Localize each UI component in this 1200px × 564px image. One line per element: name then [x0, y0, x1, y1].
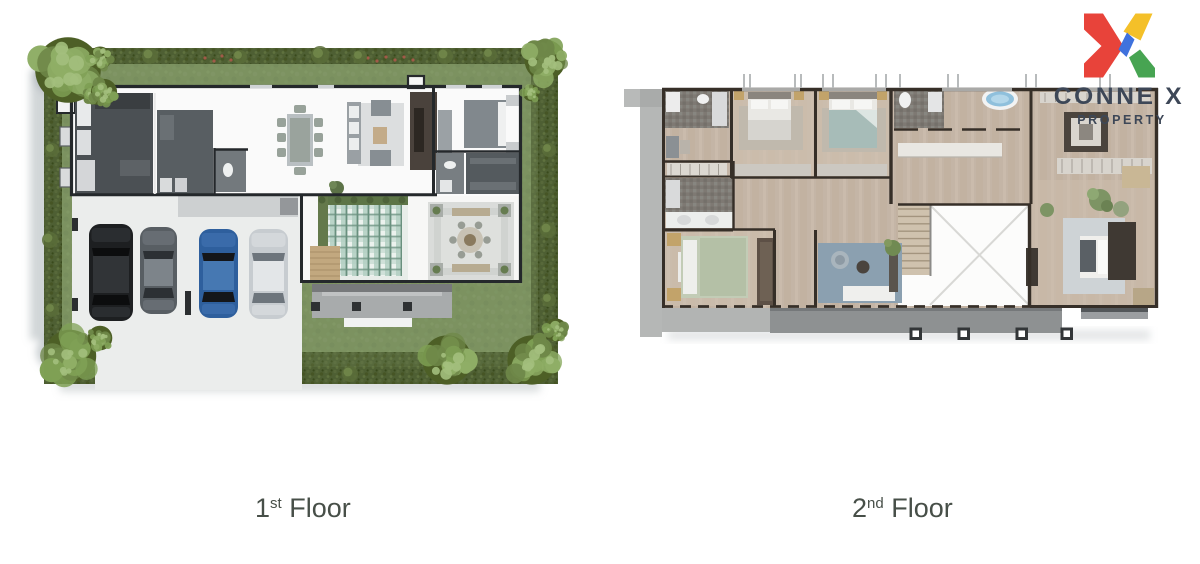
svg-text:PROPERTY: PROPERTY: [1077, 113, 1167, 127]
svg-text:CONNE X: CONNE X: [1054, 83, 1185, 110]
svg-text:2nd Floor: 2nd Floor: [852, 493, 953, 523]
svg-text:1st Floor: 1st Floor: [255, 493, 351, 523]
